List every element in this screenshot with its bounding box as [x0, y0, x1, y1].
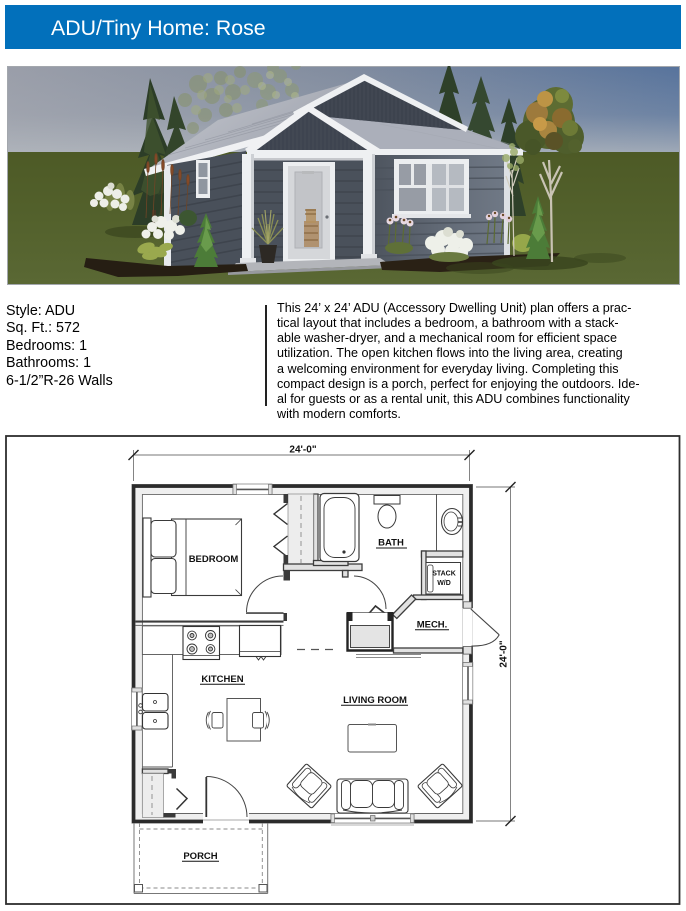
svg-text:STACK: STACK [432, 571, 456, 578]
svg-text:W/D: W/D [437, 580, 451, 587]
svg-text:24'-0": 24'-0" [499, 640, 510, 667]
svg-text:BATH: BATH [378, 538, 404, 549]
svg-text:MECH.: MECH. [417, 619, 448, 630]
svg-text:BEDROOM: BEDROOM [189, 554, 239, 565]
svg-text:24'-0": 24'-0" [289, 445, 316, 456]
svg-text:LIVING ROOM: LIVING ROOM [343, 695, 407, 706]
svg-text:PORCH: PORCH [183, 851, 217, 862]
svg-text:KITCHEN: KITCHEN [201, 674, 243, 685]
